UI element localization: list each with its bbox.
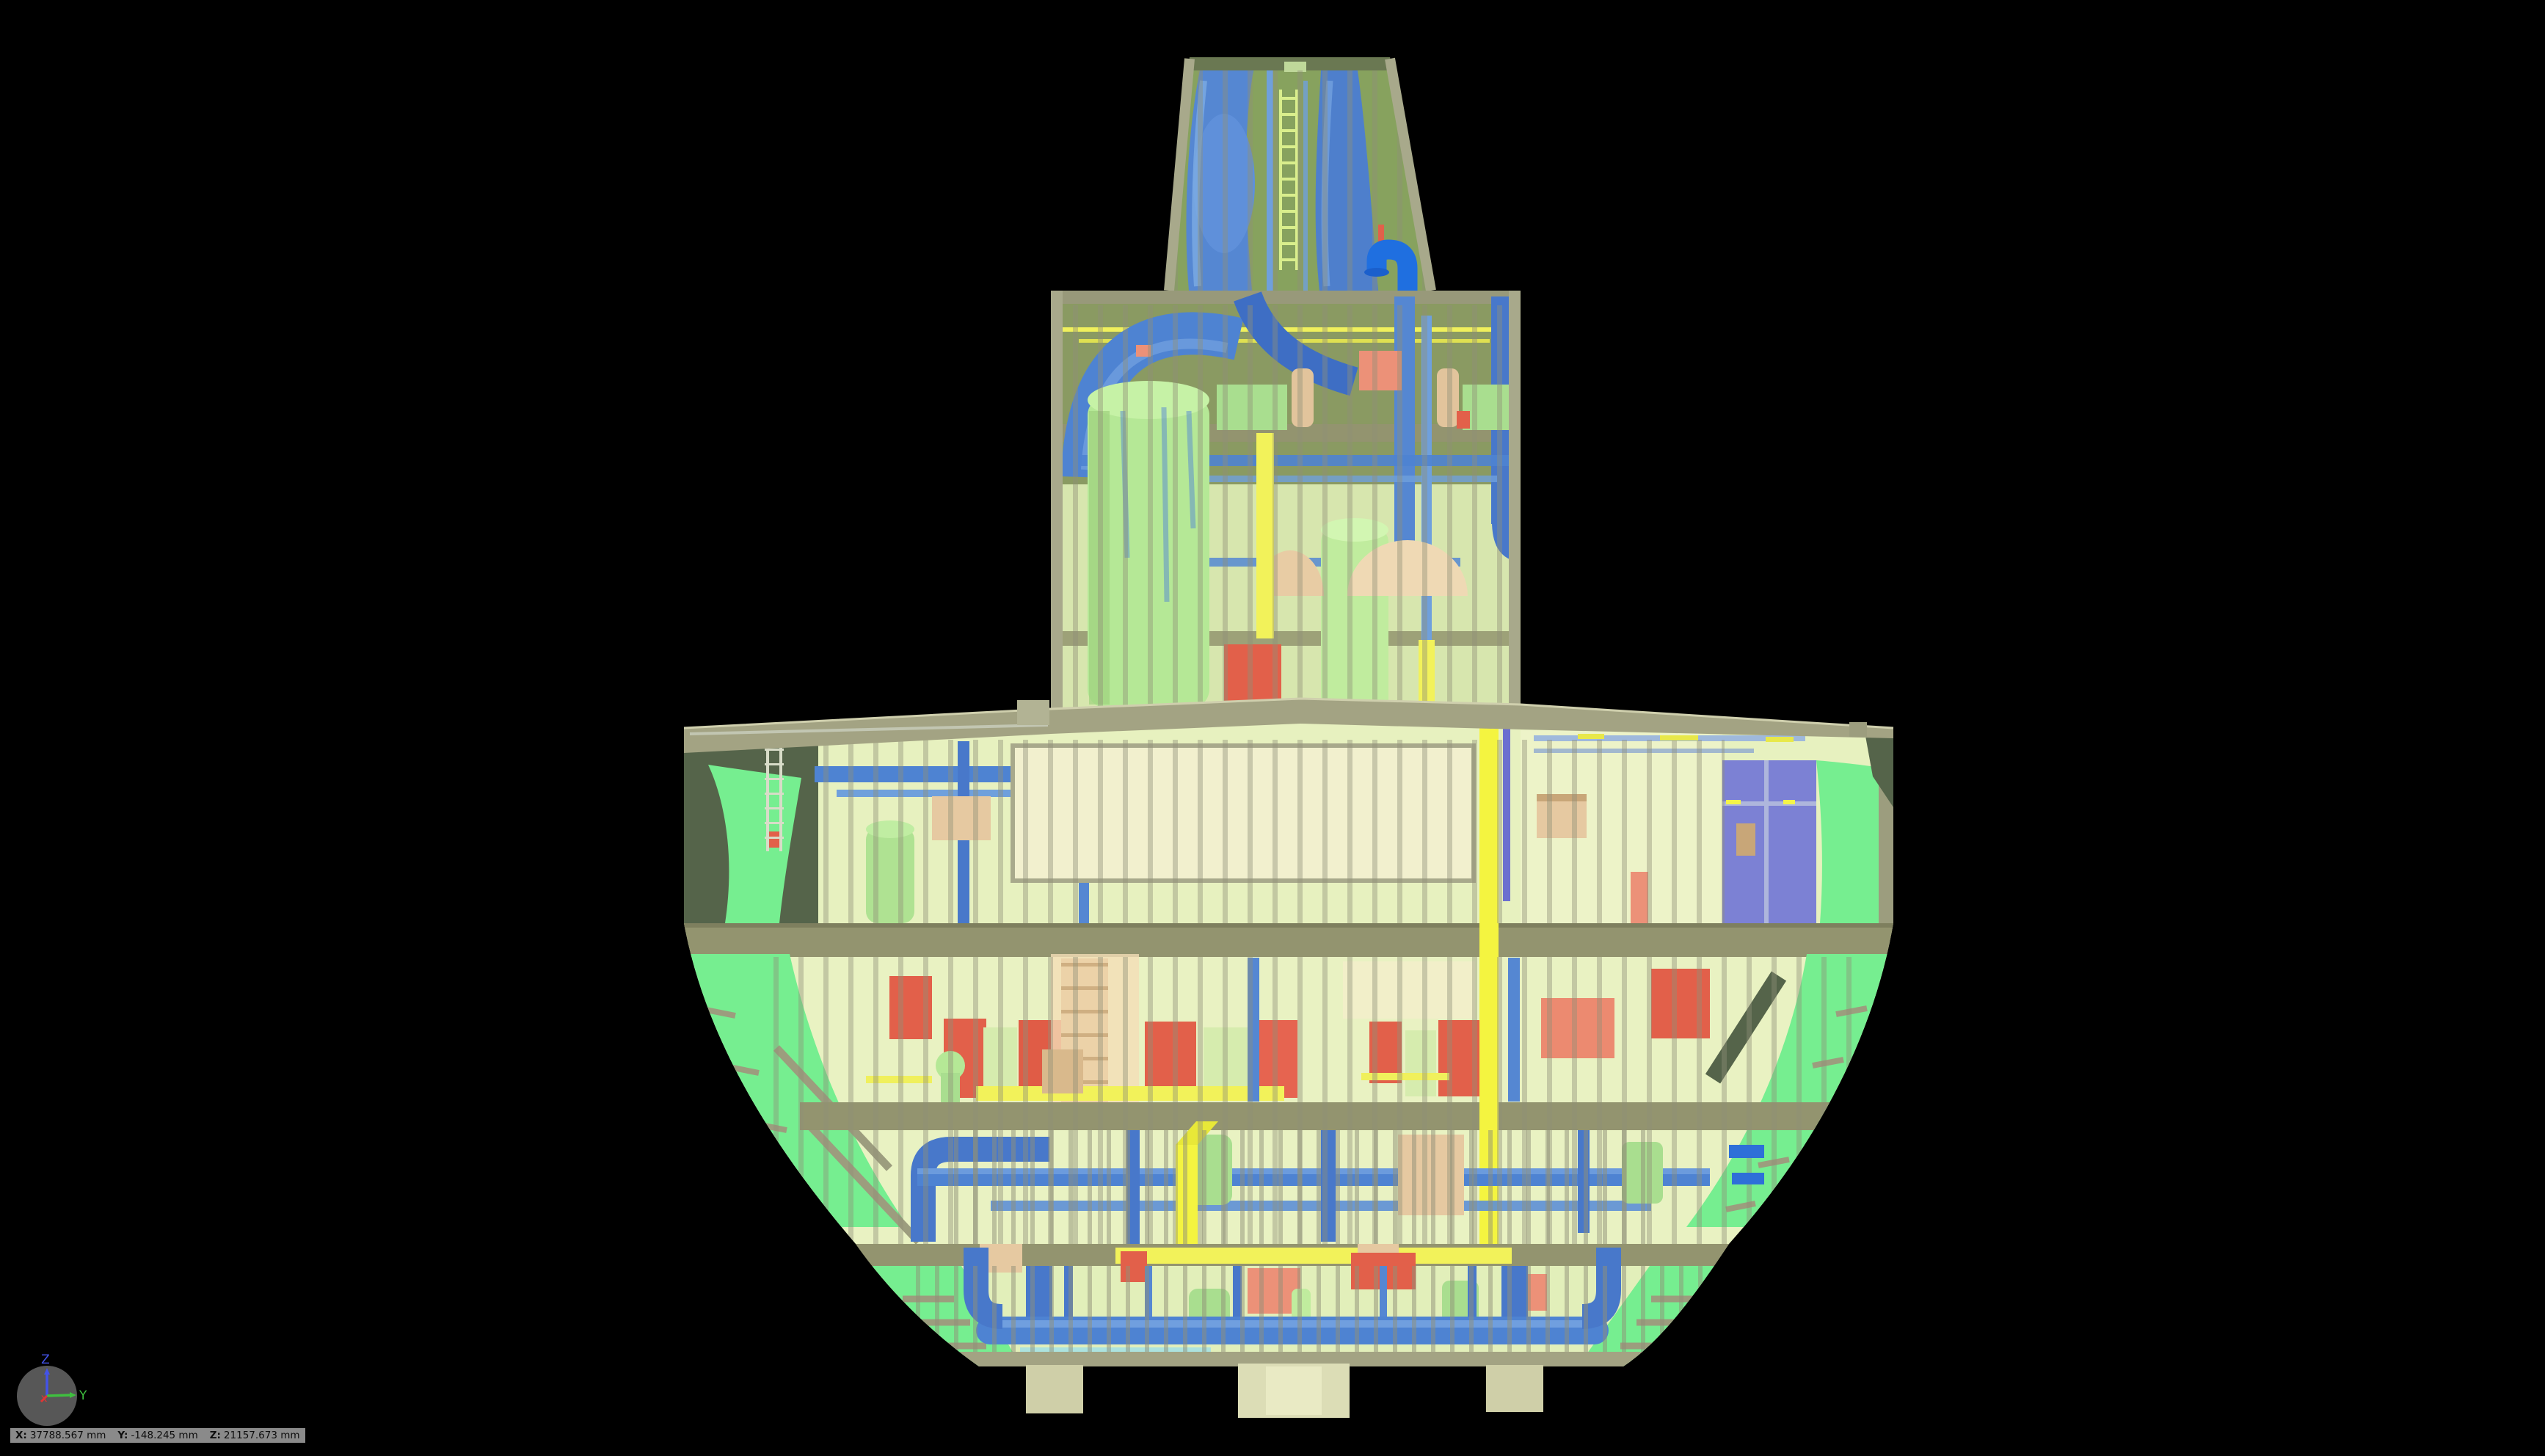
overboard-pipe-stub <box>1729 1145 1764 1158</box>
ship-cross-section-model[interactable]: Z Y x <box>0 0 2545 1456</box>
x-axis-label: x <box>41 1391 48 1405</box>
hull-upper-tier[interactable] <box>684 699 1896 923</box>
hull-lower-tier[interactable] <box>856 1238 1729 1366</box>
deckhouse-casing[interactable] <box>1051 291 1521 716</box>
z-coordinate-label: Z: <box>210 1428 221 1443</box>
hull-mid-tier-engine-room[interactable] <box>684 923 1896 1244</box>
z-coordinate-value: 21157.673 mm <box>224 1428 300 1443</box>
overboard-pipe-stub <box>1732 1173 1764 1184</box>
deckhouse-right-wall <box>1509 291 1521 716</box>
x-coordinate-value: 37788.567 mm <box>30 1428 106 1443</box>
y-coordinate-label: Y: <box>117 1428 128 1443</box>
deck-step-right <box>1849 722 1867 737</box>
z-axis-label: Z <box>41 1353 50 1367</box>
y-coordinate-value: -148.245 mm <box>131 1428 197 1443</box>
cad-3d-viewport[interactable]: Z Y x X:37788.567 mmY:-148.245 mmZ:21157… <box>0 0 2545 1456</box>
coordinate-status-bar: X:37788.567 mmY:-148.245 mmZ:21157.673 m… <box>10 1428 305 1443</box>
deck-box-left <box>1017 700 1049 725</box>
deckhouse-left-wall <box>1051 291 1063 716</box>
y-axis-label: Y <box>79 1388 87 1403</box>
x-coordinate-label: X: <box>15 1428 27 1443</box>
y-axis-line <box>47 1395 70 1396</box>
